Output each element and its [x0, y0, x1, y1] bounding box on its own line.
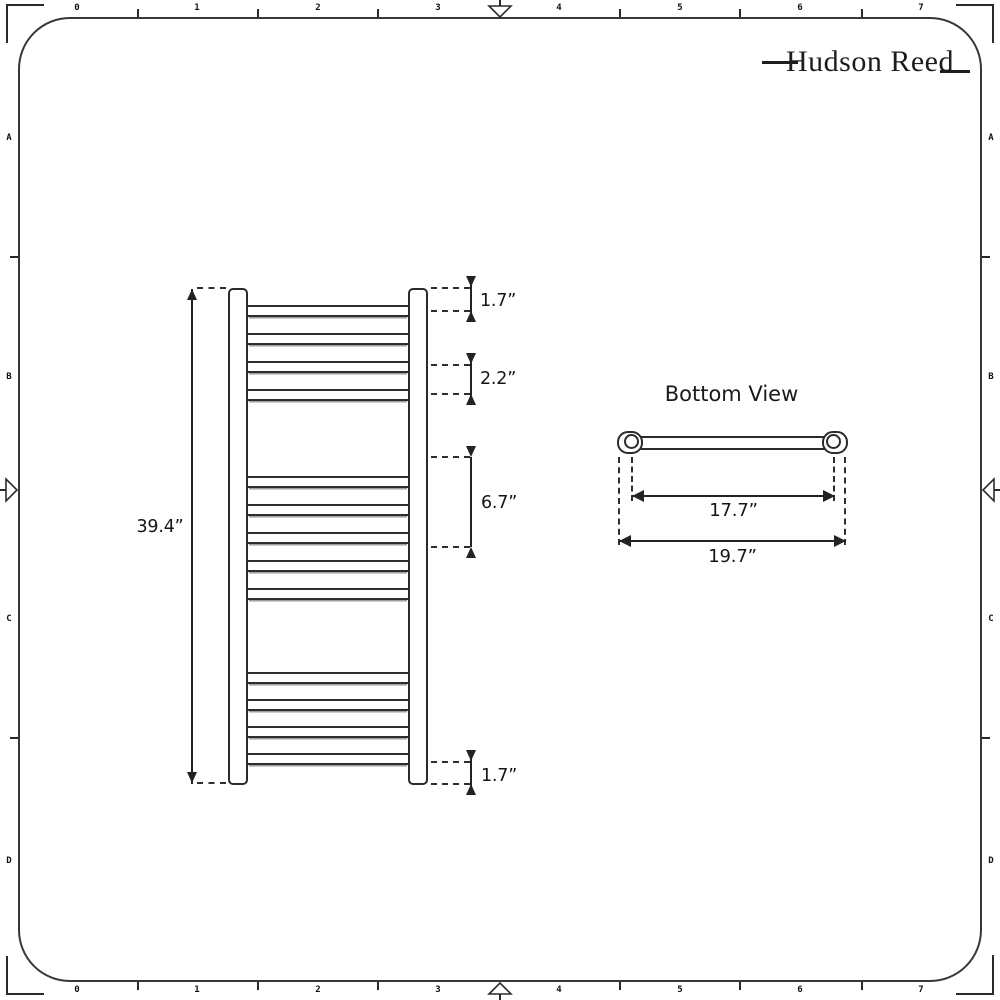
pipe-inlet-right [826, 434, 841, 449]
dimension-line-fixing-centres [632, 495, 835, 497]
radiator-tube [247, 389, 409, 401]
drawing-sheet: 0 1 2 3 4 5 6 7 0 1 2 3 4 5 6 7 A B C D … [0, 0, 1000, 1000]
extension-line [618, 457, 620, 545]
radiator-rail-right [408, 288, 428, 785]
radiator-tube [247, 532, 409, 544]
radiator-tube [247, 672, 409, 684]
bottom-view-bar [628, 436, 837, 450]
bottom-view: Bottom View 17.7” 19.7” [0, 0, 1000, 1000]
extension-line [844, 457, 846, 545]
radiator-tube [247, 504, 409, 516]
radiator-tube [247, 726, 409, 738]
bottom-view-title: Bottom View [640, 382, 823, 406]
arrowhead-right [834, 535, 846, 547]
radiator-tube [247, 305, 409, 317]
radiator-tube [247, 476, 409, 488]
radiator-tube [247, 560, 409, 572]
arrowhead-left [619, 535, 631, 547]
arrowhead-left [632, 490, 644, 502]
dim-label-overall-width: 19.7” [682, 546, 783, 567]
arrowhead-right [823, 490, 835, 502]
radiator-rail-left [228, 288, 248, 785]
radiator-tube [247, 699, 409, 711]
radiator-tube [247, 333, 409, 345]
radiator-tube [247, 588, 409, 600]
dimension-line-overall-width [619, 540, 846, 542]
radiator-tube [247, 753, 409, 765]
radiator-tube [247, 361, 409, 373]
pipe-inlet-left [624, 434, 639, 449]
dim-label-fixing-centres: 17.7” [683, 500, 784, 521]
